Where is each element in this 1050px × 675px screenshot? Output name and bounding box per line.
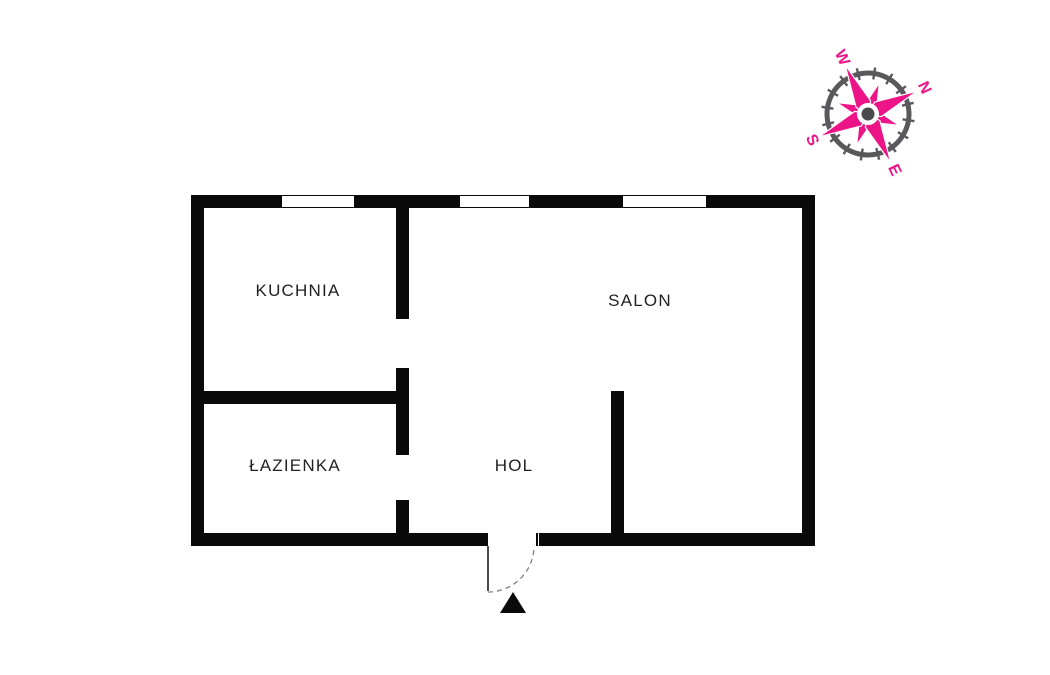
window-salon-left bbox=[459, 195, 530, 208]
wall-kuchnia-salon-middle bbox=[396, 368, 409, 455]
entrance-door-swing-arc bbox=[486, 544, 542, 596]
wall-kuchnia-salon-upper bbox=[396, 195, 409, 319]
floor-plan: KUCHNIA SALON ŁAZIENKA HOL bbox=[0, 0, 1050, 675]
window-salon-right bbox=[622, 195, 707, 208]
room-label-salon: SALON bbox=[608, 291, 672, 311]
wall-lazienka-hol-stub bbox=[396, 500, 409, 546]
entrance-arrow-icon bbox=[499, 591, 527, 615]
outer-wall-bottom-right bbox=[539, 533, 815, 546]
room-label-kuchnia: KUCHNIA bbox=[256, 281, 341, 301]
compass-letter-west: W bbox=[831, 47, 853, 69]
compass-letter-east: E bbox=[884, 162, 904, 179]
compass-letter-south: S bbox=[802, 132, 822, 149]
outer-wall-left bbox=[191, 195, 204, 546]
wall-kuchnia-lazienka bbox=[198, 391, 409, 404]
compass-letter-north: N bbox=[914, 79, 934, 97]
window-kuchnia bbox=[281, 195, 355, 208]
compass-rose-icon: N E S W bbox=[798, 40, 943, 190]
room-label-lazienka: ŁAZIENKA bbox=[249, 456, 341, 476]
outer-wall-bottom-left bbox=[191, 533, 486, 546]
room-label-hol: HOL bbox=[495, 456, 534, 476]
outer-wall-right bbox=[802, 195, 815, 546]
wall-hol-salon bbox=[611, 391, 624, 546]
